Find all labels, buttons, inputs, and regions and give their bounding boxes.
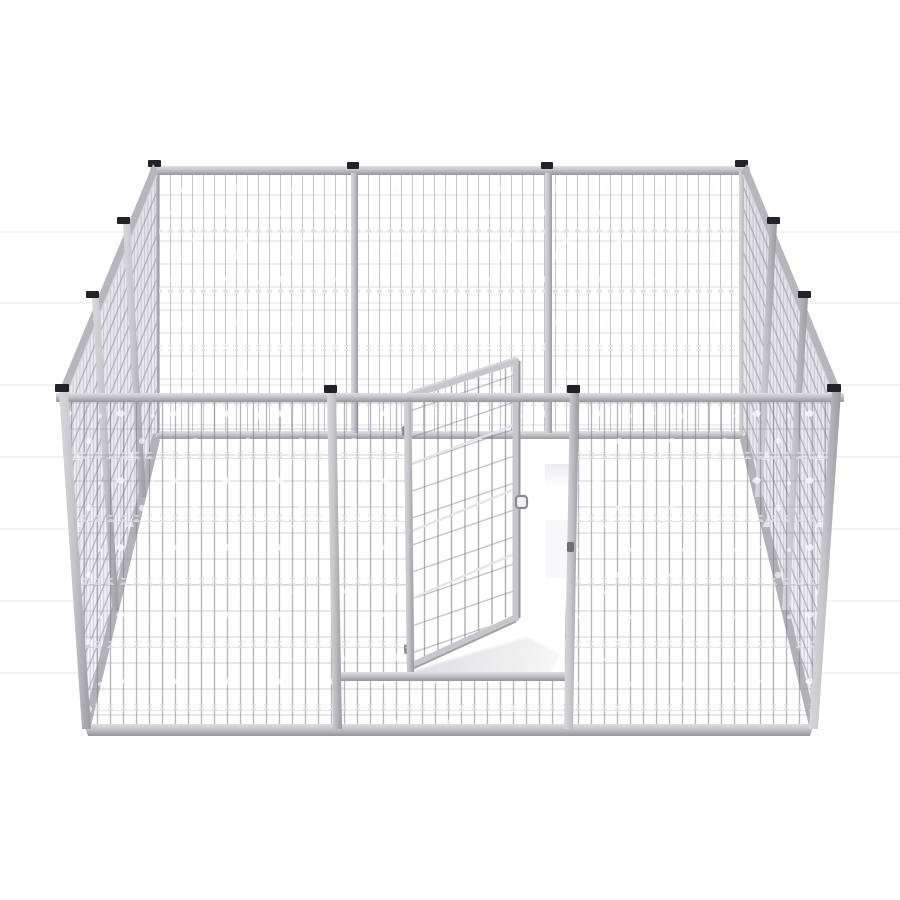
post-cap — [55, 384, 69, 392]
kennel-render — [0, 0, 900, 900]
post-cap — [767, 217, 780, 224]
kennel-product-image — [0, 0, 900, 900]
double-wire-row — [66, 704, 834, 711]
post-cap — [567, 385, 580, 393]
gate-latch — [516, 496, 527, 508]
latch-catch — [567, 542, 574, 552]
front-top-rail — [56, 393, 844, 402]
double-wire-row — [159, 287, 741, 293]
post-cap — [117, 217, 130, 224]
gate — [402, 358, 527, 671]
post-cap — [324, 385, 337, 393]
double-wire-row — [159, 345, 741, 351]
post-cap — [347, 162, 359, 169]
post-cap — [86, 291, 99, 298]
post-cap — [827, 384, 841, 392]
post-cap — [798, 291, 811, 298]
post-cap — [541, 162, 553, 169]
double-wire-row — [159, 229, 741, 235]
post-cap — [148, 160, 161, 167]
doorway-threshold-rail — [334, 672, 572, 681]
front-bottom-rail — [84, 724, 814, 736]
back-top-rail — [150, 166, 750, 175]
